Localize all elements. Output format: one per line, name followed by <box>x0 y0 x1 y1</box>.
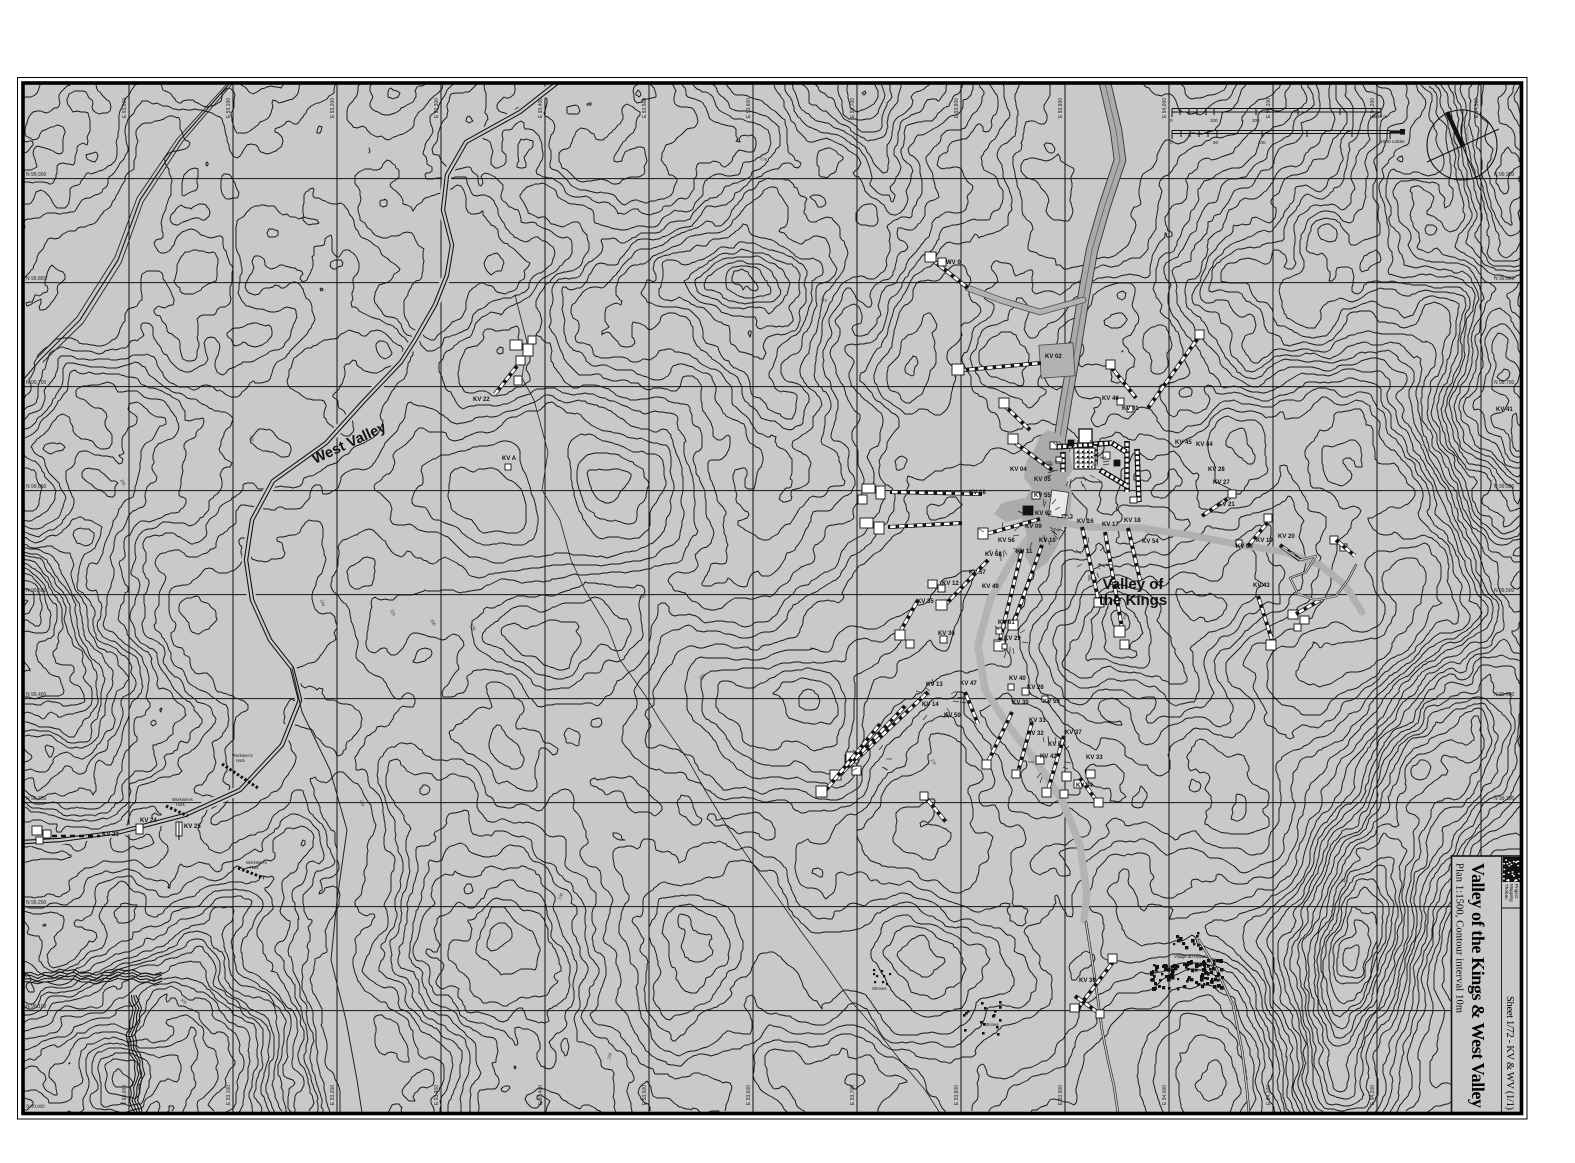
svg-text:N 99,500: N 99,500 <box>26 588 47 594</box>
svg-text:KV 39: KV 39 <box>1079 978 1096 984</box>
svg-text:Huts: Huts <box>236 758 245 763</box>
svg-text:KV A: KV A <box>502 456 517 462</box>
svg-text:E 93,000: E 93,000 <box>122 1085 128 1105</box>
svg-text:E 94,100: E 94,100 <box>1266 1085 1272 1105</box>
svg-text:KV 21: KV 21 <box>1218 502 1235 508</box>
svg-text:200: 200 <box>1252 118 1260 123</box>
svg-text:KV 09: KV 09 <box>1025 524 1042 530</box>
svg-text:E 93,100: E 93,100 <box>226 98 232 118</box>
svg-text:KV 24: KV 24 <box>140 818 157 824</box>
svg-text:E 93,800: E 93,800 <box>954 1085 960 1105</box>
svg-text:N 99,200: N 99,200 <box>26 900 47 906</box>
svg-text:E 93,200: E 93,200 <box>330 98 336 118</box>
svg-text:KV 14: KV 14 <box>922 702 939 708</box>
svg-text:KV 16: KV 16 <box>1077 519 1094 525</box>
svg-text:KV 20: KV 20 <box>1278 534 1295 540</box>
svg-text:E 93,700: E 93,700 <box>850 98 856 118</box>
svg-text:KV 42: KV 42 <box>1040 754 1057 760</box>
svg-text:KV 61: KV 61 <box>998 620 1015 626</box>
svg-text:KV 45: KV 45 <box>1175 440 1192 446</box>
svg-text:KV 05: KV 05 <box>1034 477 1051 483</box>
svg-text:KV 37: KV 37 <box>1065 730 1082 736</box>
svg-text:KV 34: KV 34 <box>1076 783 1093 789</box>
svg-text:N 99,000: N 99,000 <box>26 1105 45 1110</box>
svg-text:KV 62: KV 62 <box>1035 511 1052 517</box>
svg-text:E 94,200: E 94,200 <box>1370 1085 1376 1105</box>
svg-text:N 99,600: N 99,600 <box>1494 484 1515 490</box>
svg-text:N 99,900: N 99,900 <box>1494 172 1515 178</box>
svg-text:Shrines: Shrines <box>984 1022 999 1027</box>
svg-text:E 93,300: E 93,300 <box>434 1085 440 1105</box>
svg-text:KV 55: KV 55 <box>1034 493 1051 499</box>
svg-text:KV 44: KV 44 <box>1196 442 1213 448</box>
svg-text:KV 50: KV 50 <box>944 713 961 719</box>
svg-text:KV 43: KV 43 <box>1253 583 1270 589</box>
svg-text:N 99,400: N 99,400 <box>1494 692 1515 698</box>
svg-text:E 94,000: E 94,000 <box>1162 98 1168 118</box>
svg-text:KV 29: KV 29 <box>1004 636 1021 642</box>
svg-text:E 93,400: E 93,400 <box>538 98 544 118</box>
svg-text:KV 26: KV 26 <box>1027 685 1044 691</box>
svg-text:100: 100 <box>1210 118 1218 123</box>
svg-text:50: 50 <box>1213 140 1219 145</box>
svg-text:KV 41: KV 41 <box>1496 407 1513 413</box>
svg-text:KV 25: KV 25 <box>184 824 201 830</box>
svg-text:E 93,100: E 93,100 <box>226 1085 232 1105</box>
svg-text:Sheet 1/72 - KV & WV (1/1): Sheet 1/72 - KV & WV (1/1) <box>1504 996 1515 1111</box>
svg-text:KV 17: KV 17 <box>1102 522 1119 528</box>
svg-text:KV 11: KV 11 <box>1016 549 1033 555</box>
svg-text:KV 57: KV 57 <box>969 570 986 576</box>
svg-text:500 m: 500 m <box>1374 114 1387 120</box>
svg-text:N 99,700: N 99,700 <box>26 380 47 386</box>
svg-text:KV 58: KV 58 <box>985 552 1002 558</box>
svg-text:KV 18: KV 18 <box>1124 518 1141 524</box>
svg-text:KV 10: KV 10 <box>1039 538 1056 544</box>
svg-text:E 94,200: E 94,200 <box>1370 98 1376 118</box>
svg-text:E 93,600: E 93,600 <box>746 1085 752 1105</box>
svg-text:KV 13: KV 13 <box>926 682 943 688</box>
svg-text:E 93,800: E 93,800 <box>954 98 960 118</box>
svg-text:Mapping: Mapping <box>1509 884 1514 902</box>
svg-text:N 99,600: N 99,600 <box>26 484 47 490</box>
svg-text:1000 cubits: 1000 cubits <box>1380 139 1405 145</box>
svg-text:KV 32: KV 32 <box>1027 731 1044 737</box>
svg-text:100: 100 <box>1258 140 1266 145</box>
svg-text:E 93,700: E 93,700 <box>850 1085 856 1105</box>
svg-text:E 93,200: E 93,200 <box>330 1085 336 1105</box>
svg-text:N 99,300: N 99,300 <box>1494 796 1515 802</box>
svg-text:Theban: Theban <box>1504 884 1509 900</box>
svg-text:KV 56: KV 56 <box>998 538 1015 544</box>
svg-text:KV F: KV F <box>1048 742 1062 748</box>
svg-text:N 99,400: N 99,400 <box>26 692 47 698</box>
svg-text:KV 22: KV 22 <box>473 397 490 403</box>
svg-text:E 93,600: E 93,600 <box>746 98 752 118</box>
svg-text:E 93,400: E 93,400 <box>538 1085 544 1105</box>
svg-text:KV 23: KV 23 <box>102 832 119 838</box>
svg-text:Huts: Huts <box>250 865 259 870</box>
svg-text:KV 36: KV 36 <box>938 631 955 637</box>
svg-text:KV 01: KV 01 <box>1122 406 1139 412</box>
svg-text:E 93,900: E 93,900 <box>1058 98 1064 118</box>
svg-text:Village du Repos: Village du Repos <box>1174 954 1206 959</box>
svg-text:KV 31: KV 31 <box>1029 718 1046 724</box>
svg-text:KV 19: KV 19 <box>1256 538 1273 544</box>
svg-text:WV 0: WV 0 <box>946 260 961 266</box>
svg-text:KV 02: KV 02 <box>1045 354 1062 360</box>
svg-text:KV 49: KV 49 <box>982 584 999 590</box>
svg-text:KV 33: KV 33 <box>1086 755 1103 761</box>
svg-text:N 99,100: N 99,100 <box>26 1004 47 1010</box>
svg-text:E 93,500: E 93,500 <box>642 1085 648 1105</box>
svg-text:E 93,900: E 93,900 <box>1058 1085 1064 1105</box>
svg-text:E 93,000: E 93,000 <box>122 98 128 118</box>
svg-text:N 99,700: N 99,700 <box>1494 380 1515 386</box>
svg-text:Valley of: Valley of <box>1103 576 1165 593</box>
svg-text:KV 60: KV 60 <box>1236 544 1253 550</box>
svg-text:KV 27: KV 27 <box>1213 480 1230 486</box>
svg-text:KV 12: KV 12 <box>942 581 959 587</box>
svg-text:Huts: Huts <box>176 802 185 807</box>
svg-text:KV 54: KV 54 <box>1142 539 1159 545</box>
svg-text:N 99,800: N 99,800 <box>26 276 47 282</box>
svg-text:KV 59: KV 59 <box>1043 699 1060 705</box>
svg-text:N 99,800: N 99,800 <box>1494 276 1515 282</box>
svg-text:the Kings: the Kings <box>1099 592 1167 609</box>
svg-text:Shrines: Shrines <box>872 986 887 991</box>
svg-text:KV 47: KV 47 <box>960 681 977 687</box>
svg-text:E 94,000: E 94,000 <box>1162 1085 1168 1105</box>
svg-text:E 93,300: E 93,300 <box>434 98 440 118</box>
svg-text:E 94,100: E 94,100 <box>1266 98 1272 118</box>
svg-text:N 99,300: N 99,300 <box>26 796 47 802</box>
svg-text:KV 04: KV 04 <box>1010 467 1027 473</box>
svg-text:N 99,900: N 99,900 <box>26 172 47 178</box>
svg-text:E 93,500: E 93,500 <box>642 98 648 118</box>
svg-text:Valley of the Kings & West Val: Valley of the Kings & West Valley <box>1468 863 1488 1108</box>
svg-text:KV 40: KV 40 <box>1009 676 1026 682</box>
svg-text:Project: Project <box>1514 884 1519 899</box>
svg-text:KV 35: KV 35 <box>917 599 934 605</box>
svg-text:E 94,300: E 94,300 <box>1474 98 1480 118</box>
svg-text:KV 28: KV 28 <box>1208 467 1225 473</box>
svg-text:Plan 1:1500, Contour interval: Plan 1:1500, Contour interval 10m <box>1454 863 1465 1013</box>
svg-text:N 99,500: N 99,500 <box>1494 588 1515 594</box>
svg-text:KV 08: KV 08 <box>969 490 986 496</box>
svg-text:KV 46: KV 46 <box>1102 396 1119 402</box>
svg-text:KV 30: KV 30 <box>1012 700 1029 706</box>
